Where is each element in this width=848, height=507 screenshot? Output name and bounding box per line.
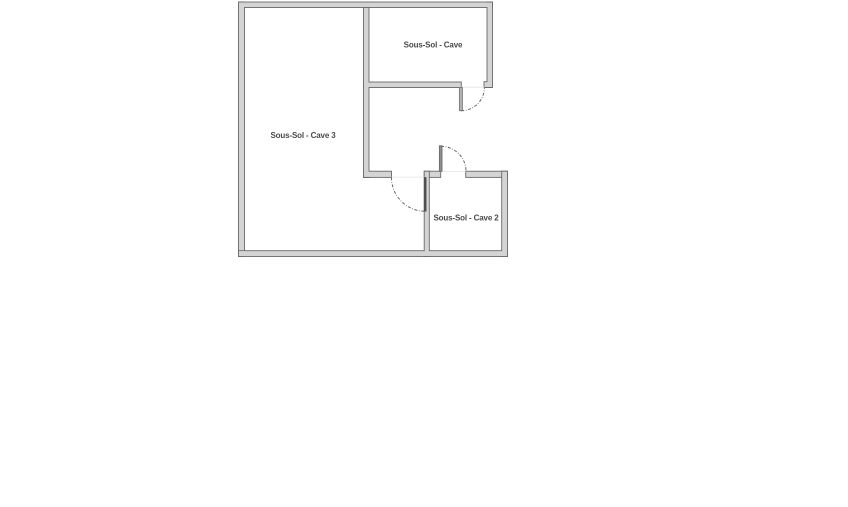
svg-text:Sous-Sol - Cave 3: Sous-Sol - Cave 3 bbox=[270, 131, 336, 140]
svg-text:Sous-Sol - Cave: Sous-Sol - Cave bbox=[404, 41, 463, 50]
svg-text:Sous-Sol - Cave 2: Sous-Sol - Cave 2 bbox=[433, 213, 499, 222]
